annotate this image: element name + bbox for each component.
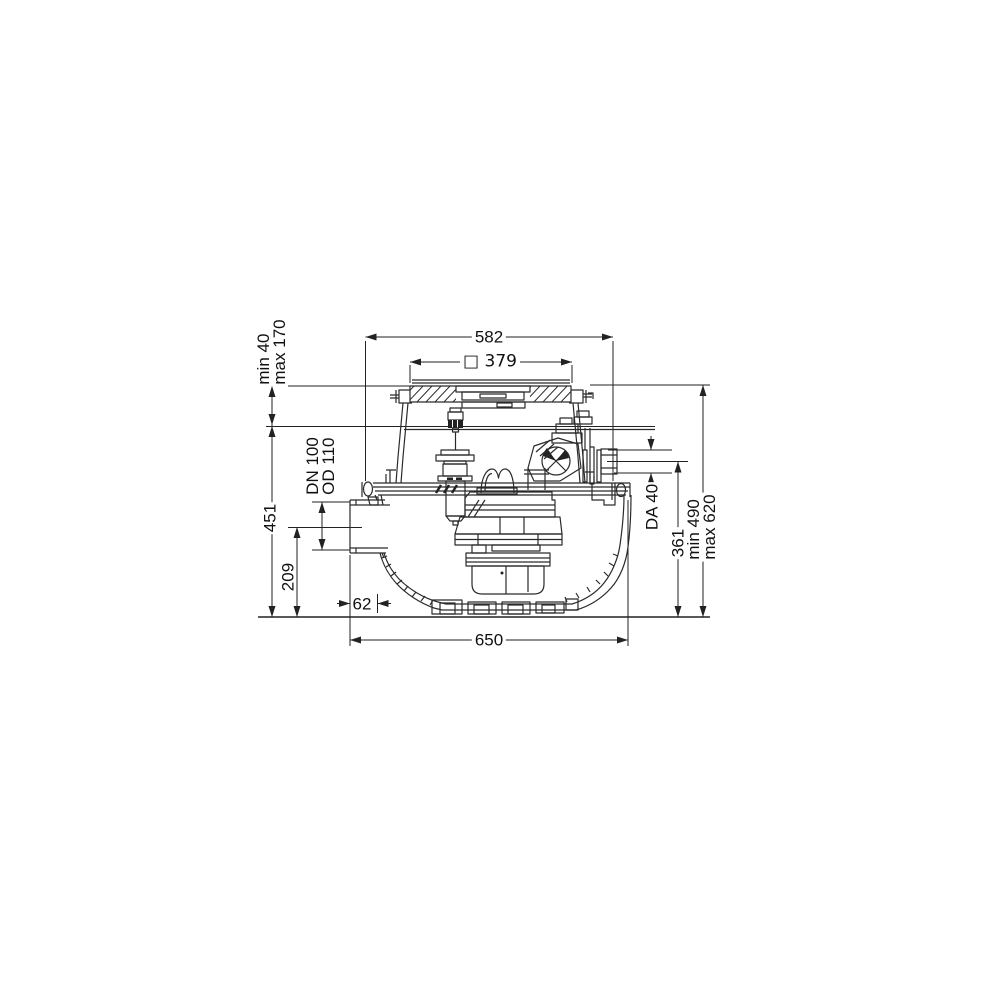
cover-section	[390, 380, 593, 408]
dim-inlet-axis-height-209: 209	[280, 561, 297, 593]
shaft-walls	[386, 403, 655, 483]
inlet-pipe	[350, 495, 390, 558]
dim-total-height-line2: max 620	[702, 494, 718, 559]
tank-bowl	[380, 495, 631, 614]
pump-assembly	[455, 469, 562, 594]
lifting-station-linework	[0, 0, 1000, 1000]
float-switch	[436, 408, 474, 525]
dim-base-width-650: 650	[472, 632, 506, 649]
dim-cover-square-379: □ 379	[460, 354, 520, 371]
dim-body-height-451: 451	[262, 502, 279, 534]
dim-total-height-min490-max620: min 490 max 620	[686, 492, 718, 561]
dim-top-width-582: 582	[472, 329, 506, 346]
dim-cover-adjust-line2: max 170	[272, 319, 288, 384]
dim-inlet-dn100-od110: DN 100 OD 110	[305, 435, 337, 497]
dim-cover-adjust-min40-max170: min 40 max 170	[256, 317, 288, 386]
outlet-pipe	[583, 447, 617, 484]
dim-inlet-line2: OD 110	[321, 437, 337, 495]
technical-drawing-canvas: 582 □ 379 min 40 max 170 451 DN 100 OD 1…	[0, 0, 1000, 1000]
dim-outlet-da40: DA 40	[644, 482, 661, 532]
dim-inlet-face-offset-62: 62	[352, 596, 373, 613]
